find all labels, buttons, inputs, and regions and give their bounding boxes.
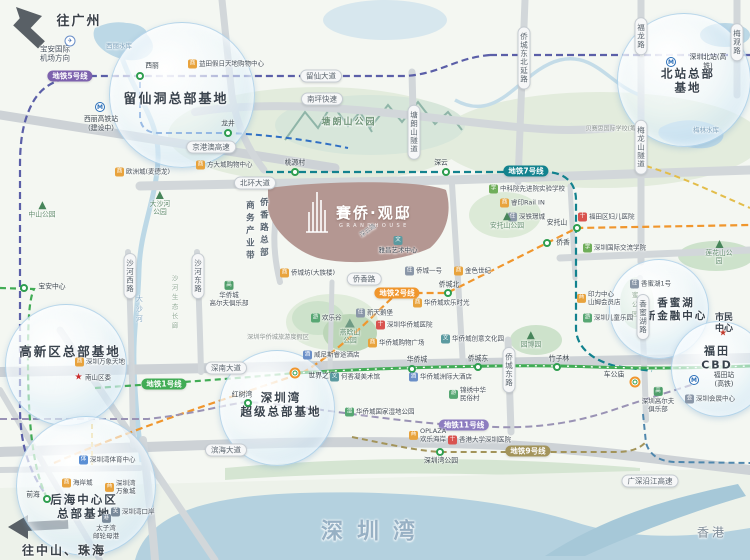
res-icon: 住 xyxy=(356,309,365,318)
poi-mall: 商欧洲城(麦德龙) xyxy=(115,168,170,177)
poi-golf: 高华侨城 高尔夫俱乐部 xyxy=(210,281,249,307)
map-text: 深圳湾 超级总部基地 xyxy=(241,391,322,420)
metro-station-icon: M xyxy=(666,57,676,67)
project-name: 賽侨·观邸 xyxy=(336,202,412,223)
poi-label: OPLAZA 欢乐海岸 xyxy=(420,427,446,443)
poi-mall: 商海岸城 xyxy=(62,479,93,488)
road-name-pill: 南坪快速 xyxy=(301,93,343,106)
poi-label: 南山区委 xyxy=(85,374,111,382)
metro-station-icon xyxy=(543,239,551,247)
poi-label: 深圳儿童乐园 xyxy=(594,314,633,322)
res-icon: 住 xyxy=(630,280,639,289)
metro-station-icon: M xyxy=(95,102,105,112)
poi-school: 学深圳国际交流学院 xyxy=(583,244,646,253)
poi-label: 深圳会展中心 xyxy=(696,395,735,403)
fun-icon: 游 xyxy=(311,314,320,323)
map-text: 沙河生态长廊 xyxy=(170,275,178,332)
metro-station-label: 西丽高铁站 （建设中） xyxy=(84,115,118,133)
map-text: 宝安国际 机场方向 xyxy=(40,45,70,64)
culture-icon: 文 xyxy=(394,236,403,245)
ship-icon: 港 xyxy=(102,514,111,523)
poi-conv: 会深圳会展中心 xyxy=(685,395,735,404)
star-icon: ★ xyxy=(74,374,83,383)
map-text: 香港 xyxy=(697,526,727,541)
poi-label: 华侨城洲际大酒店 xyxy=(420,373,472,381)
park-label: 安托山公园 xyxy=(490,212,524,229)
mall-icon: 商 xyxy=(409,431,418,440)
metro-station-label: 西丽 xyxy=(145,62,159,71)
metro-station-label: 侨香 xyxy=(556,239,570,248)
poi-mall: 商益田假日天地购物中心 xyxy=(188,60,264,69)
mall-icon: 商 xyxy=(577,294,586,303)
park-name: 园博园 xyxy=(521,340,541,348)
metro-station-icon xyxy=(630,377,641,388)
metro-station-label: 深圳湾公园 xyxy=(424,457,458,466)
school-icon: 学 xyxy=(583,244,592,253)
poi-wet: 湿华侨城国家湿地公园 xyxy=(345,408,415,417)
tree-icon xyxy=(503,212,511,220)
poi-mall: 商OPLAZA 欢乐海岸 xyxy=(409,427,446,443)
poi-label: 华侨城 高尔夫俱乐部 xyxy=(210,291,249,307)
road-name-pill: 沙河东路 xyxy=(192,253,205,299)
metro-station-label: 福田站(高铁) xyxy=(711,371,737,389)
map-text: 往中山、珠海 xyxy=(22,544,106,559)
poi-plane: ✈ xyxy=(65,36,76,47)
school-icon: 学 xyxy=(489,185,498,194)
road-name-pill: 深南大道 xyxy=(205,362,247,375)
metro-line-pill: 地铁2号线 xyxy=(374,288,419,299)
road-name-pill: 广深沿江高速 xyxy=(622,475,679,488)
tree-icon xyxy=(715,240,723,248)
metro-station-label: 安托山 xyxy=(547,219,567,228)
metro-line-pill: 地铁5号线 xyxy=(47,71,92,82)
building-icon xyxy=(304,190,330,236)
poi-label: 印力中心 山姆会员店 xyxy=(588,290,621,306)
poi-label: 金色世纪 xyxy=(465,267,491,275)
project-marker: 賽侨·观邸 GRANDHOUSE xyxy=(296,186,452,246)
metro-station-label: 龙井 xyxy=(221,120,235,129)
road-name-pill: 留仙大道 xyxy=(300,70,342,83)
metro-station-label: 桃源村 xyxy=(285,159,305,168)
poi-mall: 商华侨城欢乐时光 xyxy=(413,299,470,308)
road-name-pill: 侨城东路 xyxy=(503,347,516,393)
poi-label: 欢乐谷 xyxy=(322,314,342,322)
map-text: 往广州 xyxy=(56,14,101,30)
road-name-pill: 京港澳高速 xyxy=(186,141,236,154)
metro-station-icon xyxy=(436,448,444,456)
road-name-pill: 香蜜湖路 xyxy=(637,294,650,340)
tree-icon xyxy=(527,331,535,339)
metro-line-pill: 地铁7号线 xyxy=(503,166,548,177)
map-text: 北站总部基地 xyxy=(657,67,719,96)
poi-label: 侨城坊(大族楼) xyxy=(291,269,335,277)
map-text: 商务产业带 xyxy=(244,201,255,264)
mall-icon: 商 xyxy=(280,269,289,278)
poi-label: 威尼斯睿途酒店 xyxy=(314,351,360,359)
poi-label: 睿印Rail IN xyxy=(511,199,545,207)
metro-station-icon xyxy=(43,495,51,503)
poi-label: 益田假日天地购物中心 xyxy=(199,60,264,68)
poi-label: 方大城购物中心 xyxy=(207,161,253,169)
park-label: 园博园 xyxy=(521,331,541,348)
park-label: 莲花山公园 xyxy=(704,240,735,266)
metro-station-icon xyxy=(244,399,252,407)
metro-station-label: 深云 xyxy=(434,159,448,168)
metro-line-pill: 地铁11号线 xyxy=(439,420,489,431)
poi-hotel: 酒华侨城洲际大酒店 xyxy=(409,373,472,382)
metro-station-label: 深圳北站(高铁) xyxy=(687,53,729,71)
metro-station-label: 侨城东 xyxy=(468,355,488,364)
metro-station-label: 竹子林 xyxy=(549,355,569,364)
metro-line-pill: 地铁9号线 xyxy=(505,446,550,457)
golf-icon: 高 xyxy=(654,387,663,396)
map-text: ★ xyxy=(719,328,727,339)
map[interactable]: 賽侨·观邸 GRANDHOUSE 往广州往中山、珠海香港深圳湾宝安国际 机场方向… xyxy=(0,0,750,560)
road-name-pill: 梅龙山隧道 xyxy=(635,120,648,175)
metro-station-label: 宝安中心 xyxy=(38,283,65,292)
res-icon: 住 xyxy=(405,267,414,276)
poi-mall: 商印力中心 山姆会员店 xyxy=(577,290,621,306)
mall-icon: 商 xyxy=(454,267,463,276)
poi-res: 住侨城一号 xyxy=(405,267,442,276)
poi-res: 住香蜜湖1号 xyxy=(630,280,671,289)
conv-icon: 会 xyxy=(685,395,694,404)
road-name-pill: 塘朗山隧道 xyxy=(408,105,421,160)
map-text: 深圳华侨城旅游度假区 xyxy=(247,334,309,342)
poi-hotel: 酒威尼斯睿途酒店 xyxy=(303,351,360,360)
mtn-icon xyxy=(345,319,355,328)
poi-label: 中科院先进院实验学校 xyxy=(500,185,565,193)
hosp-icon: 十 xyxy=(578,213,587,222)
sport-icon: 体 xyxy=(79,456,88,465)
metro-station-icon xyxy=(291,168,299,176)
poi-golf: 高深圳高尔夫 俱乐部 xyxy=(642,387,675,413)
metro-line-pill: 地铁1号线 xyxy=(141,379,186,390)
mall-icon: 商 xyxy=(115,168,124,177)
poi-mall: 商华侨城购物广场 xyxy=(368,339,425,348)
poi-label: 深圳华侨城医院 xyxy=(387,321,433,329)
tree-icon xyxy=(156,191,164,199)
fun-icon: 游 xyxy=(449,390,458,399)
park-name: 大沙河 公园 xyxy=(150,200,170,217)
poi-label: 雅昌艺术中心 xyxy=(379,246,418,254)
hotel-icon: 酒 xyxy=(303,351,312,360)
road-name-pill: 梅观路 xyxy=(731,23,744,61)
mall-icon: 商 xyxy=(62,479,71,488)
poi-label: 深圳湾口岸 xyxy=(122,508,155,516)
map-text: 贝赛思国际学校(筹) xyxy=(586,125,639,133)
metro-station-icon xyxy=(290,368,301,379)
poi-mall: 商深圳万象天地 xyxy=(75,358,125,367)
metro-station-label: 车公庙 xyxy=(604,371,624,380)
map-text: 深圳湾 xyxy=(321,518,429,546)
poi-label: 深圳高尔夫 俱乐部 xyxy=(642,397,675,413)
poi-label: 海岸城 xyxy=(73,479,93,487)
metro-station-icon xyxy=(553,363,561,371)
road-name-pill: 福龙路 xyxy=(635,17,648,55)
park-name: 中山公园 xyxy=(28,210,55,218)
poi-sport: 体深圳湾体育中心 xyxy=(79,456,136,465)
metro-station-label: 华侨城 xyxy=(407,356,427,365)
poi-mall: 商侨城坊(大族楼) xyxy=(280,269,335,278)
poi-label: 太子湾 邮轮母港 xyxy=(93,524,119,540)
map-text: 梅林水库 xyxy=(693,126,719,134)
mall-icon: 商 xyxy=(368,339,377,348)
poi-label: 华侨城购物广场 xyxy=(379,339,425,347)
hosp-icon: 十 xyxy=(376,321,385,330)
mall-icon: 商 xyxy=(196,161,205,170)
poi-hosp: 十福田区妇儿医院 xyxy=(578,213,635,222)
culture-icon: 文 xyxy=(330,373,339,382)
poi-label: 深圳湾 万象城 xyxy=(116,479,136,495)
map-text: 福田CBD xyxy=(701,344,734,372)
poi-label: 侨城一号 xyxy=(416,267,442,275)
wet-icon: 湿 xyxy=(345,408,354,417)
poi-mall: 商金色世纪 xyxy=(454,267,491,276)
metro-station-icon xyxy=(444,289,452,297)
poi-fun: 游欢乐谷 xyxy=(311,314,342,323)
park-name: 燕晗山 公园 xyxy=(340,329,360,346)
poi-fun: 游深圳儿童乐园 xyxy=(583,314,633,323)
road-name-pill: 侨城东北延路 xyxy=(518,27,531,90)
map-text: 侨香路总部 xyxy=(258,198,269,261)
arrow-to-guangzhou xyxy=(13,7,45,49)
metro-station-icon: M xyxy=(689,375,699,385)
golf-icon: 高 xyxy=(225,281,234,290)
metro-station-icon xyxy=(474,363,482,371)
poi-mall: 商方大城购物中心 xyxy=(196,161,253,170)
culture-icon: 文 xyxy=(441,335,450,344)
metro-station-icon xyxy=(573,224,581,232)
poi-mall: 商睿印Rail IN xyxy=(500,199,545,208)
poi-label: 深圳国际交流学院 xyxy=(594,244,646,252)
metro-station-label: 前海 xyxy=(26,491,40,500)
poi-label: 何香凝美术馆 xyxy=(341,373,380,381)
poi-label: 新天鹅堡 xyxy=(367,309,393,317)
road-name-pill: 沙河西路 xyxy=(124,253,137,299)
poi-hosp: 十深圳华侨城医院 xyxy=(376,321,433,330)
map-text: 西丽水库 xyxy=(106,42,132,50)
map-text: 香蜜湖 新金融中心 xyxy=(645,297,708,323)
metro-station-icon xyxy=(442,168,450,176)
poi-res: 住新天鹅堡 xyxy=(356,309,393,318)
hotel-icon: 酒 xyxy=(409,373,418,382)
tree-icon xyxy=(38,201,46,209)
poi-culture: 文何香凝美术馆 xyxy=(330,373,380,382)
metro-station-label: 红树湾 xyxy=(232,391,252,400)
metro-station-icon xyxy=(136,72,144,80)
poi-label: 香蜜湖1号 xyxy=(641,280,671,288)
metro-station-label: 侨城北 xyxy=(439,281,459,290)
poi-label: 香港大学深圳医院 xyxy=(459,436,511,444)
metro-station-icon xyxy=(224,129,232,137)
park-label: 燕晗山 公园 xyxy=(340,319,360,346)
poi-ship: 港太子湾 邮轮母港 xyxy=(93,514,119,540)
plane-icon: ✈ xyxy=(65,36,76,47)
poi-mall: 商深圳湾 万象城 xyxy=(105,479,136,495)
mall-icon: 商 xyxy=(105,483,114,492)
road-name-pill: 滨海大道 xyxy=(205,444,247,457)
poi-label: 华侨城国家湿地公园 xyxy=(356,408,415,416)
poi-label: 锦绣中华 民俗村 xyxy=(460,386,486,402)
park-label: 大沙河 公园 xyxy=(150,191,170,217)
poi-culture: 文雅昌艺术中心 xyxy=(379,236,418,254)
poi-label: 福田区妇儿医院 xyxy=(589,213,635,221)
park-label: 中山公园 xyxy=(28,201,55,218)
mall-icon: 商 xyxy=(188,60,197,69)
mall-icon: 商 xyxy=(413,299,422,308)
mall-icon: 商 xyxy=(75,358,84,367)
park-name: 安托山公园 xyxy=(490,221,524,229)
metro-station-icon xyxy=(20,284,28,292)
poi-label: 深圳万象天地 xyxy=(86,358,125,366)
road-name-pill: 侨香路 xyxy=(347,273,382,286)
mall-icon: 商 xyxy=(500,199,509,208)
road-name-pill: 北环大道 xyxy=(234,177,276,190)
poi-culture: 文华侨城创意文化园 xyxy=(441,335,504,344)
poi-label: 欧洲城(麦德龙) xyxy=(126,168,170,176)
fun-icon: 游 xyxy=(583,314,592,323)
park-name: 莲花山公园 xyxy=(704,249,735,266)
poi-label: 华侨城欢乐时光 xyxy=(424,299,470,307)
map-text: 塘朗山公园 xyxy=(321,117,376,128)
poi-label: 深圳湾体育中心 xyxy=(90,456,136,464)
poi-star: ★南山区委 xyxy=(74,374,111,383)
map-text: 大沙河 xyxy=(135,295,144,325)
poi-label: 华侨城创意文化园 xyxy=(452,335,504,343)
poi-school: 学中科院先进院实验学校 xyxy=(489,185,565,194)
map-text: 留仙洞总部基地 xyxy=(123,92,228,108)
hosp-icon: 十 xyxy=(448,436,457,445)
poi-hosp: 十香港大学深圳医院 xyxy=(448,436,511,445)
poi-fun: 游锦绣中华 民俗村 xyxy=(449,386,486,402)
